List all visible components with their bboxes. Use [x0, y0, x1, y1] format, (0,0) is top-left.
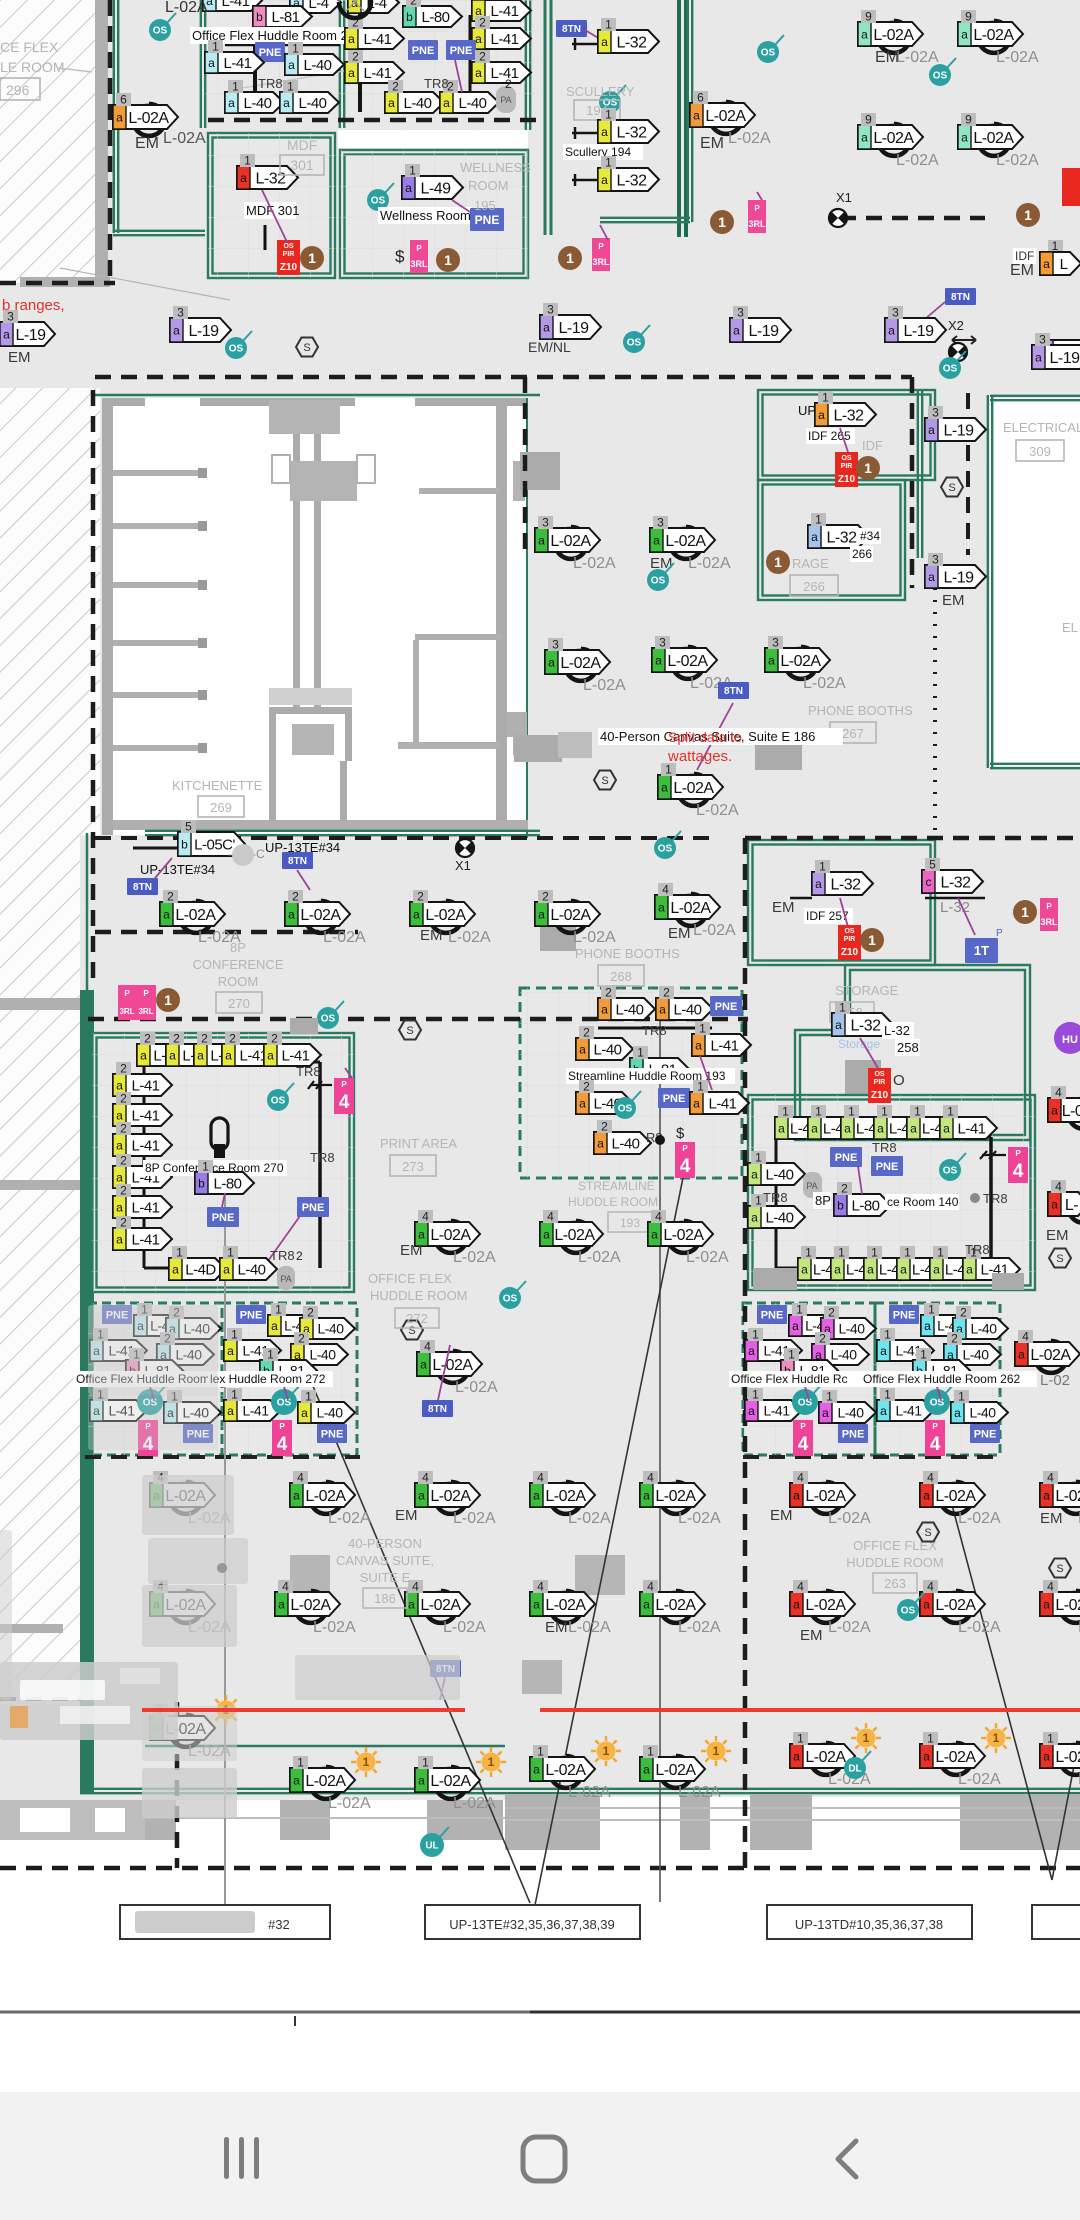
svg-text:L-41: L-41 [895, 1403, 922, 1419]
svg-text:3: 3 [552, 638, 559, 652]
svg-text:a: a [223, 1263, 230, 1277]
svg-text:PNE: PNE [412, 45, 435, 57]
svg-text:L-02A: L-02A [573, 555, 616, 572]
svg-text:1: 1 [718, 214, 726, 230]
svg-text:a: a [533, 1763, 540, 1777]
svg-text:1: 1 [927, 1732, 934, 1746]
svg-text:UP-13TE#32,35,36,37,38,39: UP-13TE#32,35,36,37,38,39 [449, 1917, 615, 1932]
svg-text:L-02A: L-02A [175, 907, 216, 924]
svg-text:301: 301 [290, 157, 314, 173]
svg-text:PNE: PNE [240, 1309, 263, 1321]
svg-text:a: a [597, 1137, 604, 1151]
svg-text:c: c [926, 875, 932, 889]
svg-text:a: a [768, 654, 775, 668]
svg-text:EM: EM [400, 1242, 423, 1259]
svg-text:a: a [954, 1406, 961, 1420]
svg-text:L-32: L-32 [940, 874, 971, 891]
svg-text:STORAGE: STORAGE [835, 983, 899, 998]
svg-text:PIR: PIR [283, 251, 295, 258]
svg-text:3RL: 3RL [119, 1007, 134, 1016]
svg-text:OS: OS [503, 1294, 518, 1305]
svg-text:L-19: L-19 [748, 323, 779, 340]
svg-text:3: 3 [547, 303, 554, 317]
svg-text:L-02A: L-02A [678, 1784, 721, 1801]
svg-text:a: a [475, 66, 482, 80]
svg-text:2: 2 [583, 1080, 590, 1094]
svg-text:L-02A: L-02A [667, 653, 708, 670]
svg-text:a: a [293, 1774, 300, 1788]
svg-text:2: 2 [296, 1249, 303, 1263]
svg-text:9: 9 [965, 10, 972, 24]
svg-text:a: a [413, 908, 420, 922]
svg-text:PNE: PNE [835, 1152, 858, 1164]
svg-text:a: a [418, 1774, 425, 1788]
svg-text:L-02A: L-02A [935, 1749, 976, 1766]
svg-text:4: 4 [927, 1580, 934, 1594]
svg-text:EM: EM [700, 135, 724, 152]
svg-text:6: 6 [697, 91, 704, 105]
svg-text:L-32: L-32 [833, 407, 864, 424]
svg-text:OS: OS [371, 196, 386, 207]
svg-text:a: a [733, 324, 740, 338]
svg-text:L-02A: L-02A [696, 802, 739, 819]
svg-text:1: 1 [537, 1745, 544, 1759]
svg-text:L-02A: L-02A [655, 1488, 696, 1505]
svg-text:L-02A: L-02A [873, 27, 914, 44]
svg-text:a: a [1035, 351, 1042, 365]
svg-text:EM: EM [770, 1507, 793, 1524]
svg-text:3: 3 [892, 306, 899, 320]
svg-text:L-40: L-40 [837, 1405, 864, 1421]
svg-text:a: a [225, 1049, 232, 1063]
svg-text:4: 4 [797, 1580, 804, 1594]
svg-text:ce Room 140: ce Room 140 [887, 1195, 959, 1209]
svg-text:a: a [475, 32, 482, 46]
svg-text:L-40: L-40 [765, 1209, 793, 1226]
svg-text:1: 1 [920, 1348, 927, 1362]
svg-text:$: $ [676, 1125, 685, 1142]
svg-text:1: 1 [819, 860, 826, 874]
svg-text:1: 1 [176, 1246, 183, 1260]
svg-text:EM/NL: EM/NL [528, 339, 571, 355]
svg-text:L-02A: L-02A [163, 130, 206, 147]
svg-text:L-32: L-32 [830, 876, 861, 893]
svg-text:a: a [910, 1122, 917, 1136]
svg-text:L-02A: L-02A [545, 1597, 586, 1614]
svg-text:a: a [643, 1489, 650, 1503]
svg-text:EM: EM [545, 1619, 568, 1636]
svg-text:L-41: L-41 [281, 1047, 309, 1064]
svg-text:a: a [880, 1344, 887, 1358]
svg-text:L-32: L-32 [884, 1023, 910, 1038]
svg-text:3: 3 [737, 306, 744, 320]
svg-text:Scullery 194: Scullery 194 [565, 145, 631, 159]
svg-text:2: 2 [542, 890, 549, 904]
svg-text:a: a [888, 324, 895, 338]
svg-text:a: a [643, 1763, 650, 1777]
svg-text:L-40: L-40 [403, 95, 431, 112]
svg-text:1: 1 [755, 1151, 762, 1165]
svg-text:2: 2 [828, 1306, 835, 1320]
svg-text:TR8: TR8 [872, 1140, 897, 1155]
svg-text:L-02A: L-02A [958, 1510, 1001, 1527]
svg-text:a: a [301, 1406, 308, 1420]
svg-text:1: 1 [212, 40, 219, 54]
svg-text:2: 2 [120, 1062, 127, 1076]
svg-text:a: a [793, 1750, 800, 1764]
svg-text:L-41: L-41 [223, 55, 251, 72]
svg-text:IDF: IDF [862, 438, 883, 453]
svg-text:a: a [933, 1263, 940, 1277]
svg-text:5: 5 [929, 858, 936, 872]
svg-text:b: b [406, 10, 413, 24]
svg-text:L-40: L-40 [969, 1405, 996, 1421]
svg-text:a: a [653, 534, 660, 548]
svg-text:a: a [751, 1211, 758, 1225]
svg-text:a: a [288, 908, 295, 922]
svg-text:2: 2 [605, 986, 612, 1000]
svg-text:1: 1 [805, 1246, 812, 1260]
svg-text:ELECTRICAL: ELECTRICAL [1003, 420, 1080, 435]
svg-text:X2: X2 [948, 318, 964, 333]
svg-text:b: b [256, 10, 263, 24]
svg-text:4: 4 [1022, 1330, 1029, 1344]
svg-text:L-40: L-40 [243, 95, 271, 112]
svg-text:WELLNESS: WELLNESS [460, 160, 531, 175]
svg-text:L-02A: L-02A [805, 1749, 846, 1766]
svg-text:L-02A: L-02A [780, 653, 821, 670]
svg-text:8TN: 8TN [562, 24, 581, 35]
svg-text:Z10: Z10 [838, 474, 856, 485]
svg-text:a: a [197, 1049, 204, 1063]
svg-text:258: 258 [897, 1040, 919, 1055]
svg-text:OS: OS [627, 338, 642, 349]
svg-text:1: 1 [566, 250, 574, 266]
svg-text:a: a [861, 131, 868, 145]
svg-text:L-02A: L-02A [545, 1762, 586, 1779]
svg-text:a: a [822, 1406, 829, 1420]
svg-text:4: 4 [662, 883, 669, 897]
svg-text:a: a [601, 35, 608, 49]
svg-text:1: 1 [884, 1388, 891, 1402]
svg-text:L-02A: L-02A [728, 130, 771, 147]
svg-text:2: 2 [307, 1306, 314, 1320]
svg-text:9: 9 [965, 113, 972, 127]
svg-text:1: 1 [755, 1194, 762, 1208]
svg-text:1: 1 [752, 1328, 759, 1342]
svg-text:L-02A: L-02A [305, 1773, 346, 1790]
svg-text:PHONE BOOTHS: PHONE BOOTHS [808, 703, 913, 718]
svg-text:OS: OS [943, 1166, 958, 1177]
svg-text:266: 266 [803, 579, 825, 594]
svg-text:L-02A: L-02A [973, 27, 1014, 44]
svg-text:3RL: 3RL [1040, 917, 1058, 927]
svg-text:L: L [1060, 256, 1068, 273]
svg-text:KITCHENETTE: KITCHENETTE [172, 778, 263, 793]
svg-text:L-19: L-19 [188, 323, 219, 340]
svg-text:L-02A: L-02A [828, 1510, 871, 1527]
svg-text:L-41: L-41 [957, 1120, 985, 1137]
svg-text:L-41: L-41 [131, 1077, 159, 1094]
svg-text:PHONE BOOTHS: PHONE BOOTHS [575, 946, 680, 961]
svg-text:a: a [227, 1344, 234, 1358]
svg-text:Wellness Room: Wellness Room [380, 208, 471, 223]
svg-text:3: 3 [659, 636, 666, 650]
svg-text:2: 2 [601, 1120, 608, 1134]
svg-text:4: 4 [422, 1471, 429, 1485]
svg-text:b: b [181, 838, 188, 852]
svg-text:a: a [1018, 1348, 1025, 1362]
svg-text:a: a [420, 1358, 427, 1372]
svg-text:a: a [173, 324, 180, 338]
svg-text:L-02A: L-02A [1055, 1597, 1080, 1614]
svg-text:L-02A: L-02A [443, 1619, 486, 1636]
svg-text:a: a [793, 1598, 800, 1612]
svg-text:a: a [443, 96, 450, 110]
svg-text:a: a [601, 173, 608, 187]
svg-text:L-02A: L-02A [453, 1249, 496, 1266]
svg-text:CE FLEX: CE FLEX [0, 39, 59, 55]
svg-text:P: P [1015, 1149, 1021, 1158]
svg-text:3RL: 3RL [138, 1007, 153, 1016]
svg-text:OS: OS [901, 1606, 916, 1617]
svg-text:1: 1 [275, 1303, 282, 1317]
svg-text:PRINT AREA: PRINT AREA [380, 1136, 457, 1151]
svg-text:L-02A: L-02A [430, 1773, 471, 1790]
svg-text:266: 266 [852, 547, 872, 561]
svg-text:L-02A: L-02A [568, 1510, 611, 1527]
svg-text:a: a [172, 1263, 179, 1277]
svg-text:1T: 1T [974, 943, 989, 958]
svg-text:2: 2 [120, 1092, 127, 1106]
svg-text:L-02A: L-02A [300, 907, 341, 924]
svg-text:a: a [877, 1122, 884, 1136]
svg-text:L-02A: L-02A [705, 108, 746, 125]
svg-text:PA: PA [280, 1274, 291, 1284]
svg-text:9: 9 [865, 113, 872, 127]
svg-text:2: 2 [583, 1026, 590, 1040]
svg-text:1: 1 [797, 1732, 804, 1746]
svg-text:L-02A: L-02A [545, 1488, 586, 1505]
svg-text:L-02A: L-02A [554, 1227, 595, 1244]
svg-text:4: 4 [647, 1580, 654, 1594]
svg-text:1: 1 [1024, 207, 1032, 223]
svg-text:S: S [1056, 1563, 1063, 1575]
svg-text:OS: OS [798, 1398, 813, 1409]
svg-text:PIR: PIR [841, 463, 853, 470]
svg-text:a: a [924, 1319, 931, 1333]
svg-text:a: a [601, 125, 608, 139]
svg-text:OS: OS [943, 364, 958, 375]
svg-text:OS: OS [321, 1014, 336, 1025]
svg-text:L-02A: L-02A [996, 152, 1039, 169]
svg-text:a: a [283, 96, 290, 110]
svg-text:1: 1 [202, 1160, 209, 1174]
svg-text:L-40: L-40 [615, 1001, 643, 1018]
svg-text:1: 1 [227, 1246, 234, 1260]
svg-text:a: a [267, 1049, 274, 1063]
svg-text:TR8: TR8 [642, 1023, 667, 1038]
svg-text:L-40: L-40 [458, 95, 486, 112]
svg-text:1: 1 [822, 391, 829, 405]
svg-text:O: O [893, 1072, 905, 1089]
svg-text:P: P [143, 989, 149, 998]
svg-text:1: 1 [782, 1105, 789, 1119]
svg-text:4: 4 [422, 1210, 429, 1224]
svg-text:PNE: PNE [974, 1428, 997, 1440]
svg-text:L-19: L-19 [903, 323, 934, 340]
svg-text:L-41: L-41 [710, 1037, 738, 1054]
svg-text:TR8: TR8 [763, 1190, 788, 1205]
svg-text:3: 3 [657, 516, 664, 530]
svg-text:a: a [1043, 1489, 1050, 1503]
svg-text:L-32: L-32 [616, 34, 647, 51]
svg-text:TR8: TR8 [424, 76, 449, 91]
svg-text:1: 1 [863, 1731, 870, 1745]
svg-text:IDF 257: IDF 257 [806, 909, 849, 923]
svg-text:263: 263 [884, 1576, 906, 1591]
svg-text:PNE: PNE [475, 213, 500, 227]
svg-text:a: a [966, 1263, 973, 1277]
svg-text:OS: OS [933, 71, 948, 82]
svg-text:L-02A: L-02A [568, 1784, 611, 1801]
svg-text:a: a [751, 1168, 758, 1182]
svg-text:2: 2 [352, 50, 359, 64]
svg-text:1: 1 [488, 1755, 495, 1769]
svg-text:P: P [279, 1422, 285, 1431]
svg-text:Office Flex Huddle Room 262: Office Flex Huddle Room 262 [863, 1372, 1021, 1386]
svg-text:4: 4 [1055, 1086, 1062, 1100]
svg-text:1: 1 [287, 80, 294, 94]
svg-text:4: 4 [1055, 1180, 1062, 1194]
svg-text:4: 4 [680, 1156, 691, 1177]
svg-text:L-80: L-80 [213, 1175, 241, 1192]
svg-text:4: 4 [798, 1434, 809, 1455]
svg-text:273: 273 [402, 1159, 424, 1174]
svg-text:2: 2 [271, 1032, 278, 1046]
svg-text:1: 1 [1047, 1732, 1054, 1746]
svg-text:1: 1 [947, 1105, 954, 1119]
svg-text:L-02A: L-02A [935, 1597, 976, 1614]
svg-text:EM: EM [942, 592, 965, 609]
svg-text:S: S [924, 1527, 931, 1539]
svg-text:2: 2 [229, 1032, 236, 1046]
svg-text:L-02A: L-02A [453, 1795, 496, 1812]
svg-text:1: 1 [815, 513, 822, 527]
svg-text:a: a [792, 1319, 799, 1333]
svg-text:EM: EM [1046, 1227, 1069, 1244]
svg-text:1: 1 [838, 1246, 845, 1260]
svg-text:HU: HU [1062, 1034, 1078, 1046]
svg-text:1: 1 [267, 1348, 274, 1362]
svg-text:L-41: L-41 [490, 3, 518, 20]
svg-text:309: 309 [1029, 444, 1051, 459]
svg-text:X1: X1 [455, 858, 471, 873]
svg-text:L-02A: L-02A [996, 49, 1039, 66]
svg-text:LE ROOM: LE ROOM [0, 59, 65, 75]
svg-text:4: 4 [412, 1580, 419, 1594]
svg-text:a: a [651, 1228, 658, 1242]
svg-text:L-02A: L-02A [305, 1488, 346, 1505]
svg-text:L-02A: L-02A [550, 907, 591, 924]
svg-text:L-02A: L-02A [425, 907, 466, 924]
svg-text:L-02A: L-02A [328, 1795, 371, 1812]
svg-text:40-PERSON: 40-PERSON [348, 1536, 422, 1551]
svg-text:1: 1 [848, 1105, 855, 1119]
svg-text:2: 2 [120, 1184, 127, 1198]
svg-text:TR8: TR8 [965, 1242, 990, 1257]
svg-text:L-41: L-41 [363, 31, 391, 48]
svg-text:PNE: PNE [302, 1202, 325, 1214]
svg-text:a: a [293, 1489, 300, 1503]
svg-text:a: a [900, 1263, 907, 1277]
svg-text:2: 2 [120, 1216, 127, 1230]
svg-text:EM: EM [395, 1507, 418, 1524]
svg-text:L-02A: L-02A [1030, 1347, 1071, 1364]
svg-text:2: 2 [505, 77, 512, 91]
svg-text:L-02A: L-02A [560, 655, 601, 672]
svg-text:8P: 8P [815, 1193, 831, 1208]
svg-text:L-4D: L-4D [185, 1261, 216, 1278]
svg-text:lex Huddle Room 272: lex Huddle Room 272 [210, 1372, 326, 1386]
svg-text:4: 4 [537, 1471, 544, 1485]
svg-text:4: 4 [297, 1471, 304, 1485]
svg-text:a: a [278, 1598, 285, 1612]
svg-text:L-32: L-32 [255, 170, 286, 187]
svg-text:1: 1 [305, 1390, 312, 1404]
svg-text:1: 1 [839, 1001, 846, 1015]
svg-text:L-40: L-40 [830, 1347, 857, 1363]
svg-text:1: 1 [815, 1105, 822, 1119]
svg-text:L-02A: L-02A [550, 533, 591, 550]
svg-text:2: 2 [298, 1332, 305, 1346]
svg-text:L-40: L-40 [611, 1135, 639, 1152]
svg-text:L-02A: L-02A [313, 1619, 356, 1636]
svg-text:HUDDLE ROOM: HUDDLE ROOM [370, 1288, 468, 1303]
svg-text:UP-13TD#10,35,36,37,38: UP-13TD#10,35,36,37,38 [795, 1917, 943, 1932]
svg-text:3: 3 [932, 553, 939, 567]
svg-text:a: a [748, 1344, 755, 1358]
svg-text:L-02A: L-02A [328, 1510, 371, 1527]
svg-text:4: 4 [424, 1340, 431, 1354]
svg-text:EM: EM [668, 925, 691, 942]
svg-text:2: 2 [417, 890, 424, 904]
svg-text:a: a [793, 1489, 800, 1503]
svg-text:L-02A: L-02A [1055, 1749, 1080, 1766]
svg-text:2: 2 [392, 80, 399, 94]
svg-text:MDF: MDF [287, 137, 317, 153]
svg-text:L-02A: L-02A [453, 1510, 496, 1527]
svg-text:L-41: L-41 [763, 1403, 790, 1419]
svg-text:a: a [548, 656, 555, 670]
svg-text:PNE: PNE [761, 1309, 784, 1321]
svg-text:2: 2 [479, 50, 486, 64]
svg-text:a: a [163, 908, 170, 922]
svg-text:L-4: L-4 [308, 0, 328, 12]
svg-text:1: 1 [409, 164, 416, 178]
svg-text:a: a [288, 58, 295, 72]
svg-text:a: a [801, 1263, 808, 1277]
svg-text:4: 4 [927, 1471, 934, 1485]
svg-text:a: a [658, 901, 665, 915]
svg-text:2: 2 [819, 1332, 826, 1346]
svg-text:PNE: PNE [321, 1428, 344, 1440]
svg-text:8TN: 8TN [951, 292, 970, 303]
svg-text:a: a [533, 1598, 540, 1612]
svg-text:193: 193 [620, 1216, 640, 1230]
svg-text:a: a [693, 109, 700, 123]
svg-text:PNE: PNE [715, 1001, 738, 1013]
